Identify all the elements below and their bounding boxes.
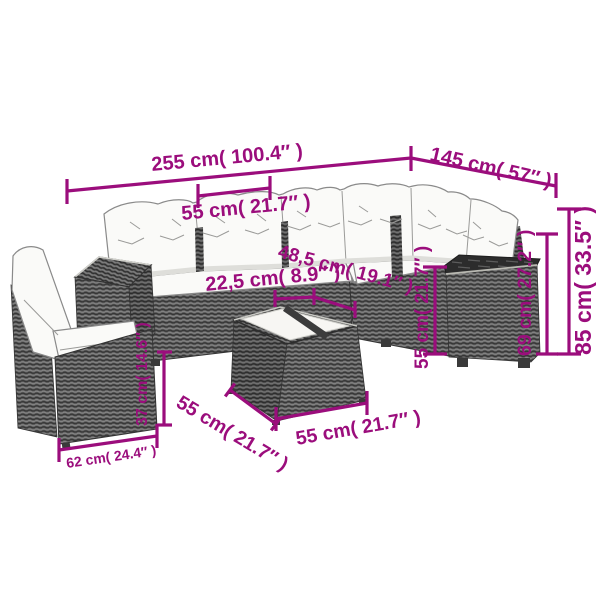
svg-text:69 cm( 27.2″ ): 69 cm( 27.2″ ) xyxy=(514,230,536,356)
svg-text:55 cm( 21.7″ ): 55 cm( 21.7″ ) xyxy=(412,246,433,369)
svg-text:85 cm( 33.5″ ): 85 cm( 33.5″ ) xyxy=(570,206,596,355)
svg-text:37 cm( 14.6″ ): 37 cm( 14.6″ ) xyxy=(134,322,151,426)
